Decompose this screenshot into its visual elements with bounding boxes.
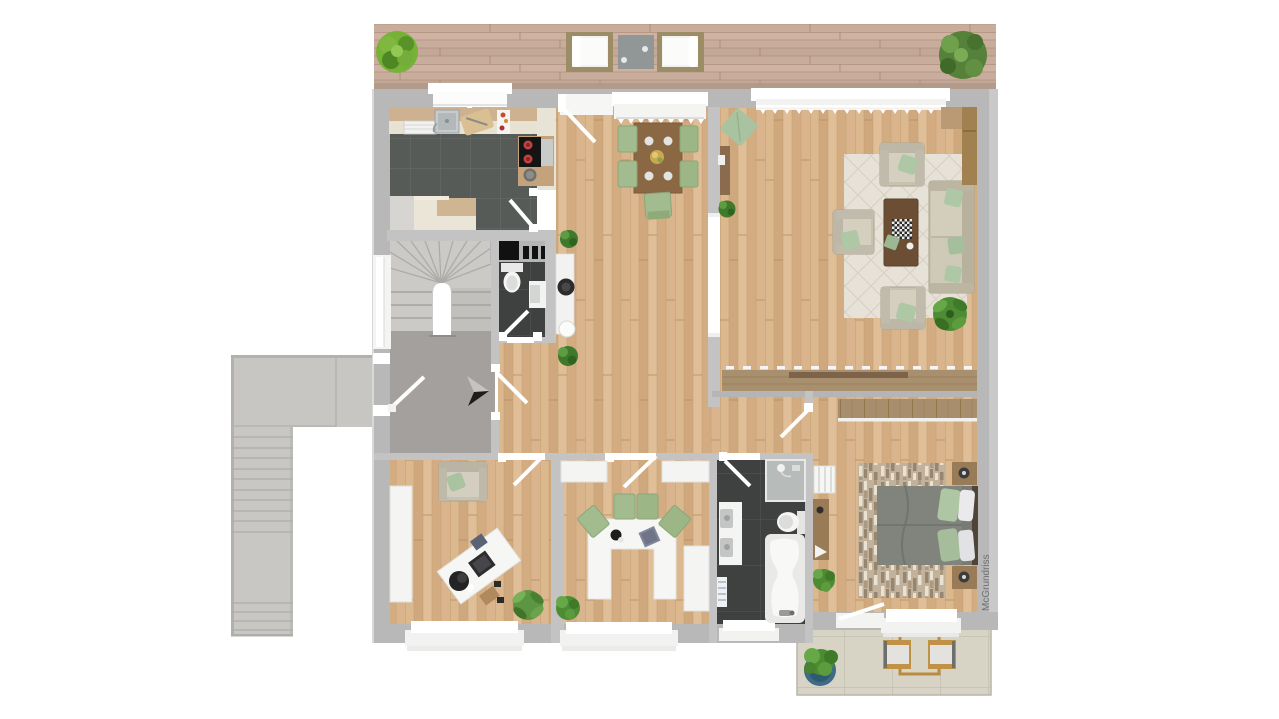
svg-text:McGrundriss: McGrundriss (981, 554, 992, 611)
